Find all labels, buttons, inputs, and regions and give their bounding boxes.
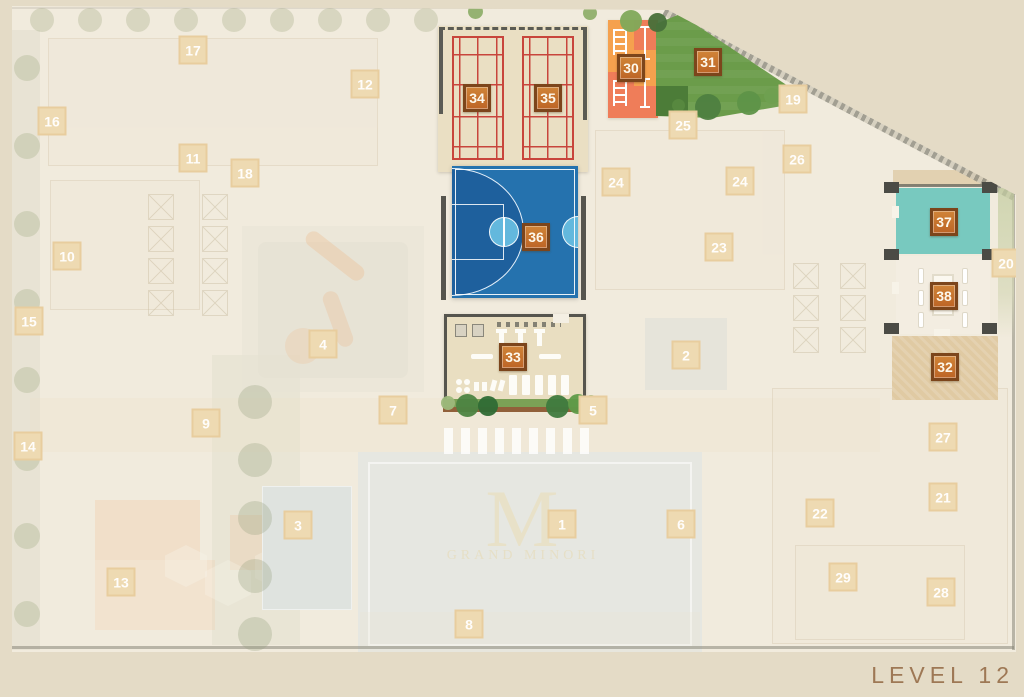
- tree-icon: [620, 10, 642, 32]
- treadmill-icon: [509, 375, 517, 395]
- tree-icon: [695, 94, 721, 120]
- badminton-courts-area[interactable]: [438, 26, 588, 172]
- unit-marker-28: 28: [927, 578, 956, 607]
- unit-marker-37[interactable]: 37: [930, 208, 958, 236]
- chair-icon: [962, 312, 968, 328]
- unit-marker-8: 8: [455, 610, 484, 639]
- elevator-core-faded: [793, 295, 819, 321]
- unit-marker-1: 1: [548, 510, 577, 539]
- crosswalk-stripe: [461, 428, 470, 454]
- unit-marker-38[interactable]: 38: [930, 282, 958, 310]
- unit-marker-21: 21: [929, 483, 958, 512]
- tree-icon: [238, 617, 272, 651]
- center-circle: [562, 216, 578, 248]
- chair-icon: [962, 268, 968, 284]
- tree-icon: [238, 385, 272, 419]
- unit-marker-14: 14: [14, 432, 43, 461]
- watermark-name: GRAND MINORI: [430, 548, 616, 564]
- court-wall-left: [441, 196, 446, 300]
- unit-marker-17: 17: [179, 36, 208, 65]
- unit-marker-31[interactable]: 31: [694, 48, 722, 76]
- court-wall-right: [581, 196, 586, 300]
- tree-icon: [366, 8, 390, 32]
- gym-machine-icon: [455, 324, 467, 337]
- dumbbell-icon: [490, 380, 498, 392]
- unit-marker-26: 26: [783, 145, 812, 174]
- tree-icon: [222, 8, 246, 32]
- crosswalk-stripe: [478, 428, 487, 454]
- bush-icon: [546, 395, 569, 418]
- dashed-wall: [439, 27, 587, 30]
- bench-press-icon: [539, 354, 561, 359]
- unit-marker-3: 3: [284, 511, 313, 540]
- crosswalk-stripe: [546, 428, 555, 454]
- dumbbell-icon: [482, 382, 487, 391]
- tree-icon: [30, 8, 54, 32]
- door-notch: [892, 206, 899, 218]
- chair-icon: [918, 290, 924, 306]
- site-plan: M GRAND MINORI: [0, 0, 1024, 697]
- unit-marker-24: 24: [602, 168, 631, 197]
- key-paint: [452, 204, 504, 260]
- floorplan-canvas: M GRAND MINORI: [0, 0, 1024, 697]
- unit-marker-20: 20: [992, 249, 1021, 278]
- unit-marker-29: 29: [829, 563, 858, 592]
- bench-icon: [515, 329, 526, 333]
- treadmill-icon: [522, 375, 530, 395]
- unit-marker-36[interactable]: 36: [522, 223, 550, 251]
- unit-marker-24: 24: [726, 167, 755, 196]
- tree-icon: [648, 13, 667, 32]
- tree-icon: [270, 8, 294, 32]
- unit-marker-11: 11: [179, 144, 208, 173]
- unit-marker-19: 19: [779, 85, 808, 114]
- elevator-core-faded: [202, 290, 228, 316]
- tree-icon: [174, 8, 198, 32]
- elevator-core-faded: [202, 258, 228, 284]
- map-border-bottom: [12, 646, 1014, 649]
- ladder-icon: [613, 29, 627, 55]
- kettlebell-icon: [464, 379, 470, 385]
- unit-marker-6: 6: [667, 510, 696, 539]
- wall-right: [583, 28, 587, 120]
- unit-marker-4: 4: [309, 330, 338, 359]
- tree-icon: [468, 4, 483, 19]
- elevator-core-faded: [840, 295, 866, 321]
- dumbbell-icon: [498, 380, 506, 392]
- elevator-core-faded: [148, 194, 174, 220]
- unit-marker-10: 10: [53, 242, 82, 271]
- bush-icon: [456, 394, 479, 417]
- pillar: [884, 249, 899, 260]
- tree-icon: [126, 8, 150, 32]
- pond-faded: [262, 486, 352, 610]
- pillar: [982, 323, 997, 334]
- bench-icon: [534, 329, 545, 333]
- unit-marker-32[interactable]: 32: [931, 353, 959, 381]
- unit-marker-30[interactable]: 30: [617, 54, 645, 82]
- elevator-core-faded: [148, 226, 174, 252]
- tree-icon: [414, 8, 438, 32]
- kettlebell-icon: [456, 387, 462, 393]
- free-throw-line: [503, 217, 505, 247]
- tree-icon: [238, 501, 272, 535]
- unit-marker-2: 2: [672, 341, 701, 370]
- tree-icon: [583, 6, 597, 20]
- bench-press-icon: [471, 354, 493, 359]
- bush-icon: [441, 396, 455, 410]
- crosswalk-stripe: [495, 428, 504, 454]
- unit-marker-23: 23: [705, 233, 734, 262]
- unit-marker-27: 27: [929, 423, 958, 452]
- tree-icon: [737, 91, 761, 115]
- tree-icon: [14, 601, 40, 627]
- three-point-area: [452, 168, 524, 296]
- unit-marker-34[interactable]: 34: [463, 84, 491, 112]
- tree-icon: [14, 523, 40, 549]
- elevator-core-faded: [148, 258, 174, 284]
- elevator-core-faded: [840, 327, 866, 353]
- elevator-core-faded: [840, 263, 866, 289]
- unit-marker-35[interactable]: 35: [534, 84, 562, 112]
- door-notch: [934, 329, 950, 336]
- unit-marker-25: 25: [669, 111, 698, 140]
- elevator-core-faded: [793, 327, 819, 353]
- unit-marker-13: 13: [107, 568, 136, 597]
- dumbbell-icon: [474, 382, 479, 391]
- tree-icon: [78, 8, 102, 32]
- level-label: LEVEL 12: [871, 662, 1014, 689]
- elevator-core-faded: [793, 263, 819, 289]
- unit-marker-12: 12: [351, 70, 380, 99]
- unit-marker-15: 15: [15, 307, 44, 336]
- unit-marker-18: 18: [231, 159, 260, 188]
- chair-icon: [918, 312, 924, 328]
- free-throw-circle: [489, 217, 519, 247]
- unit-marker-7: 7: [379, 396, 408, 425]
- unit-marker-9: 9: [192, 409, 221, 438]
- bush-icon: [478, 396, 498, 416]
- kettlebell-icon: [456, 379, 462, 385]
- bench-icon: [537, 331, 542, 346]
- unit-marker-16: 16: [38, 107, 67, 136]
- wall-left: [439, 28, 443, 114]
- tree-icon: [14, 211, 40, 237]
- tree-icon: [14, 133, 40, 159]
- unit-marker-22: 22: [806, 499, 835, 528]
- pillar: [884, 323, 899, 334]
- unit-marker-33[interactable]: 33: [499, 343, 527, 371]
- tree-icon: [238, 559, 272, 593]
- chair-icon: [918, 268, 924, 284]
- elevator-core-faded: [148, 290, 174, 316]
- kettlebell-icon: [464, 387, 470, 393]
- chair-icon: [962, 290, 968, 306]
- door-notch: [892, 282, 899, 294]
- gym-machine-icon: [472, 324, 484, 337]
- crosswalk-stripe: [563, 428, 572, 454]
- elevator-core-faded: [202, 194, 228, 220]
- ladder-icon: [613, 80, 627, 106]
- elevator-core-faded: [202, 226, 228, 252]
- pillar: [982, 182, 997, 193]
- tree-icon: [14, 55, 40, 81]
- treadmill-icon: [548, 375, 556, 395]
- door-notch: [553, 314, 569, 323]
- unit-marker-5: 5: [579, 396, 608, 425]
- climb-pole-icon: [644, 80, 646, 106]
- map-border-top: [12, 7, 668, 9]
- crosswalk-stripe: [529, 428, 538, 454]
- basketball-court[interactable]: [452, 166, 578, 298]
- crosswalk-stripe: [512, 428, 521, 454]
- tree-icon: [238, 443, 272, 477]
- treadmill-icon: [535, 375, 543, 395]
- bench-icon: [496, 329, 507, 333]
- treadmill-icon: [561, 375, 569, 395]
- crosswalk-stripe: [444, 428, 453, 454]
- weight-rack-icon: [497, 322, 561, 327]
- tree-icon: [318, 8, 342, 32]
- crosswalk-stripe: [580, 428, 589, 454]
- tree-icon: [14, 367, 40, 393]
- pillar: [884, 182, 899, 193]
